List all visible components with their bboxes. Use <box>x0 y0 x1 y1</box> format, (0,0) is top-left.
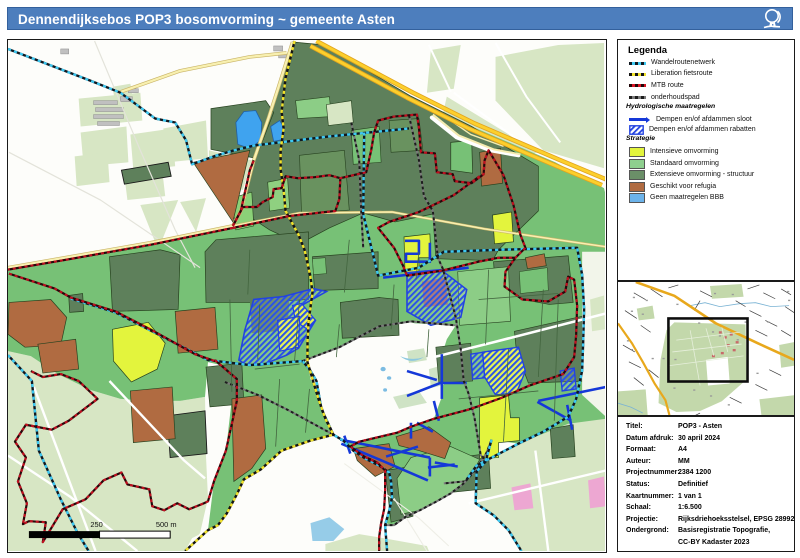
svg-text:500 m: 500 m <box>156 520 177 529</box>
svg-text:250: 250 <box>90 520 102 529</box>
